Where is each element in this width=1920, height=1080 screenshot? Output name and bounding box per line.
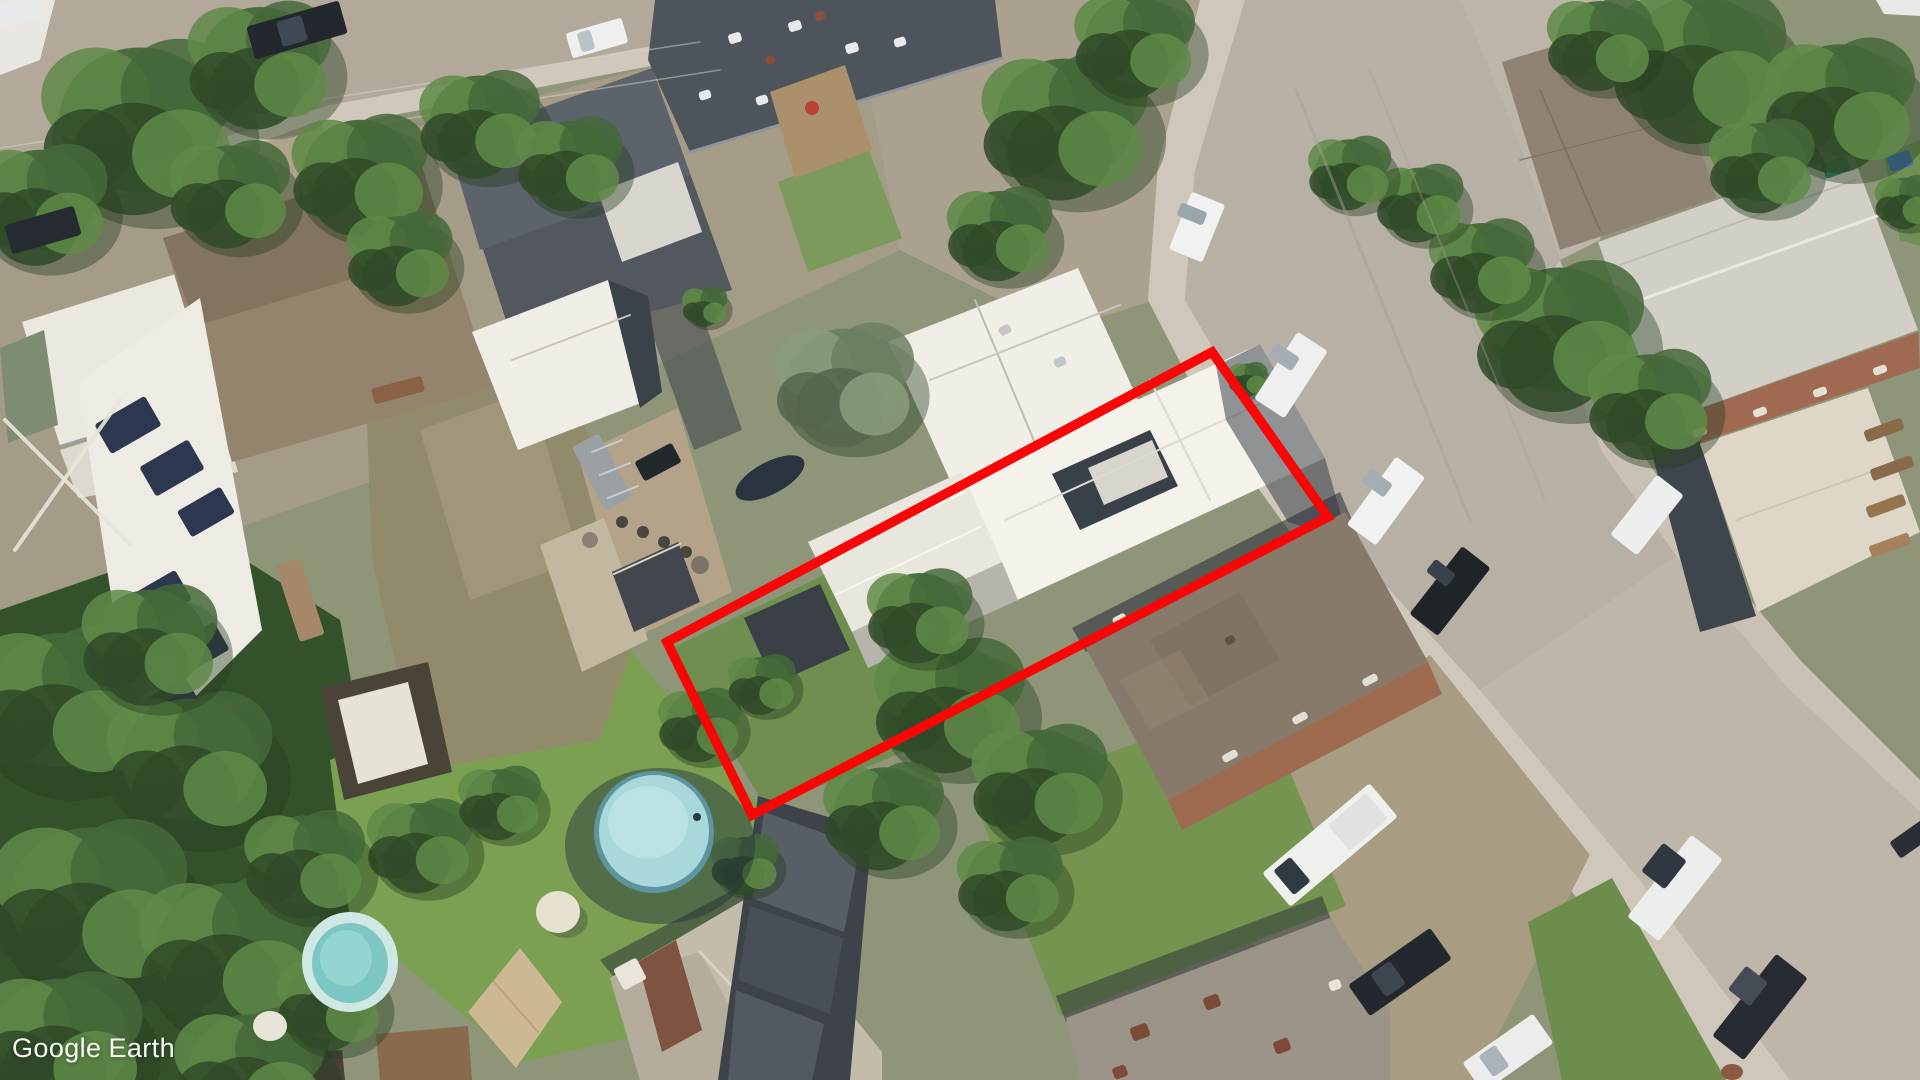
white-round-cover	[536, 891, 580, 933]
watermark-brand: Google	[12, 1033, 101, 1063]
planter-pot	[658, 536, 670, 548]
pool-ladder	[693, 813, 701, 821]
brown-patio	[376, 1026, 472, 1080]
white-garden-object	[253, 1011, 287, 1041]
google-earth-watermark: GoogleEarth	[12, 1035, 175, 1062]
planter-pot	[680, 546, 692, 558]
watermark-product: Earth	[108, 1033, 175, 1063]
planter-pot	[691, 556, 709, 574]
small-pool-highlight	[320, 930, 372, 986]
google-earth-viewport[interactable]: GoogleEarth	[0, 0, 1920, 1080]
patio-umbrella	[805, 101, 819, 115]
planter-pot	[582, 532, 598, 548]
manhole-patch	[1721, 1064, 1743, 1080]
pool-water-highlight	[608, 786, 688, 858]
satellite-imagery	[0, 0, 1920, 1080]
planter-pot	[637, 526, 649, 538]
planter-pot	[616, 516, 628, 528]
aerial-imagery	[0, 0, 1920, 1080]
